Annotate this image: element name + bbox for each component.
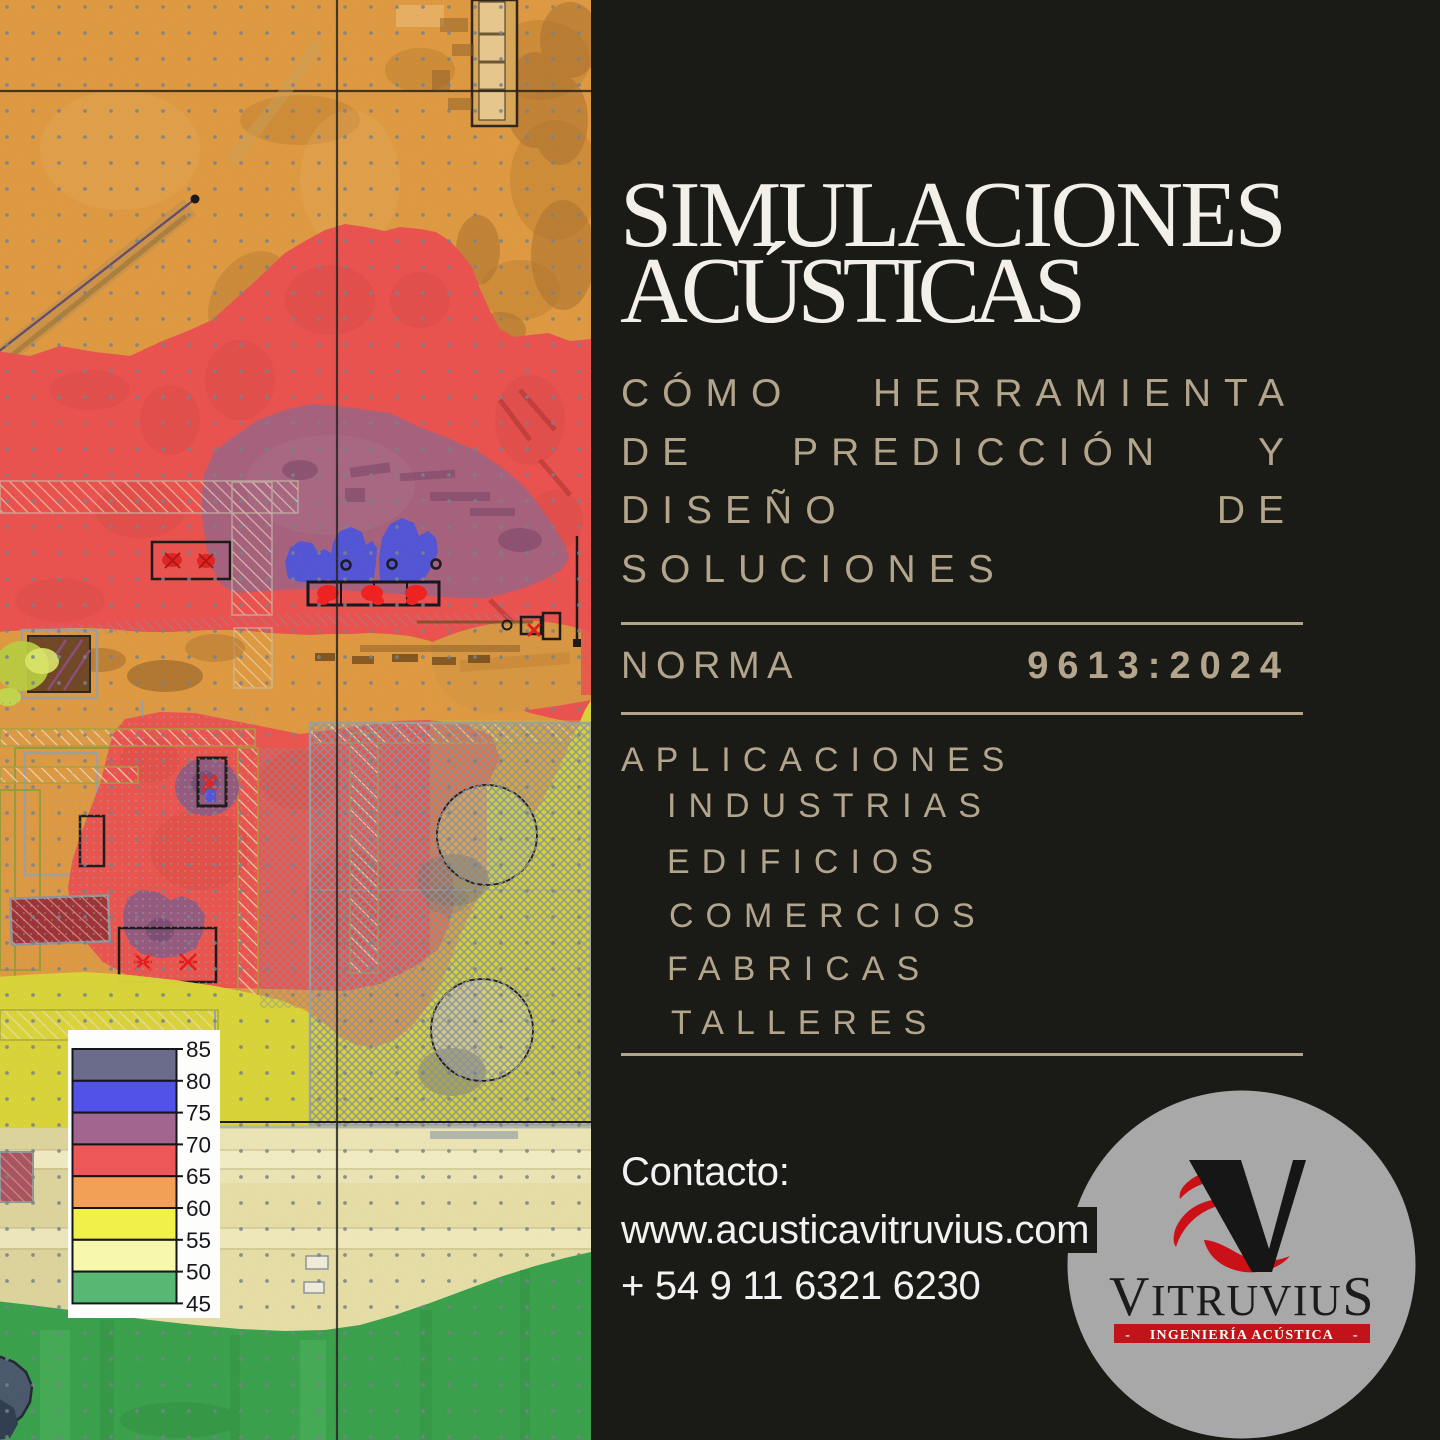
svg-text:65: 65: [186, 1164, 211, 1189]
svg-text:45: 45: [186, 1291, 211, 1316]
svg-text:70: 70: [186, 1132, 211, 1157]
svg-text:60: 60: [186, 1196, 211, 1221]
svg-text:55: 55: [186, 1228, 211, 1253]
svg-text:85: 85: [186, 1037, 211, 1062]
svg-text:75: 75: [186, 1101, 211, 1126]
svg-text:VITRUVIUS: VITRUVIUS: [1109, 1266, 1375, 1328]
svg-text:80: 80: [186, 1069, 211, 1094]
svg-text:- INGENIERÍA ACÚSTICA -: - INGENIERÍA ACÚSTICA -: [1125, 1326, 1359, 1343]
svg-text:50: 50: [186, 1260, 211, 1285]
